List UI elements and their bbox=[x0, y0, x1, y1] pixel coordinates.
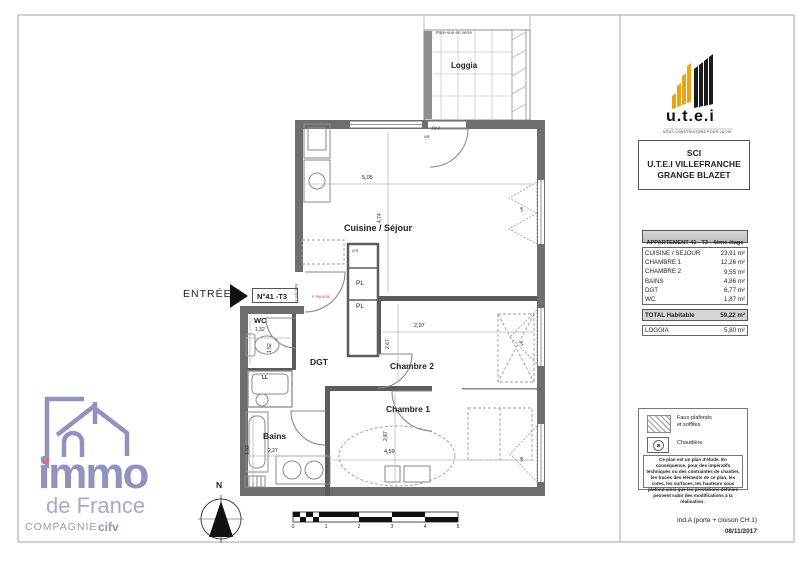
room-label-loggia: Loggia bbox=[451, 62, 477, 70]
surface-table-total: TOTAL Habitable 59,22 m² bbox=[642, 309, 748, 321]
row-label: CHAMBRE 1 bbox=[645, 258, 681, 267]
sci-line1: SCI bbox=[639, 148, 749, 159]
scale-tick-3: 3 bbox=[391, 524, 394, 530]
utei-tagline: NOUS CONSTRUISONS POUR LA VIE bbox=[663, 131, 732, 134]
sci-line3: GRANGE BLAZET bbox=[639, 170, 749, 181]
scale-bar bbox=[293, 512, 458, 522]
vr-annotation-top: VR bbox=[424, 135, 430, 139]
legend-box: Faux-plafonds et soffites Chaudière Ce p… bbox=[638, 408, 748, 490]
row-label: CUISINE / SEJOUR bbox=[645, 249, 700, 258]
immo-company-bold-label: cifv bbox=[98, 521, 119, 533]
row-value: 23,91 m² bbox=[721, 250, 745, 257]
room-label-wc: WC bbox=[254, 317, 267, 325]
sci-box: SCI U.T.E.I VILLEFRANCHE GRANGE BLAZET bbox=[638, 140, 750, 190]
vr-annotation-window3: VR bbox=[521, 457, 525, 462]
dim-wc-w: 1,32 bbox=[255, 328, 265, 333]
row-value: 4,86 m² bbox=[724, 278, 745, 285]
utei-logo-wordmark: u.t.e.i bbox=[666, 109, 715, 125]
north-compass-icon bbox=[198, 495, 244, 543]
dim-chambre1-h: 2,87 bbox=[384, 431, 389, 441]
door-red-annotation-h: P. PALIERE bbox=[312, 296, 330, 300]
total-value: 59,22 m² bbox=[720, 312, 745, 319]
dim-chambre2-w: 2,97 bbox=[414, 324, 425, 330]
dim-bains-h: 1,92 bbox=[246, 445, 251, 455]
row-label: BAINS bbox=[645, 277, 664, 286]
closet-label-gti: GTI bbox=[352, 250, 358, 254]
room-label-bains: Bains bbox=[263, 432, 286, 441]
legend-faux-plafonds-2: et soffites bbox=[677, 423, 700, 429]
scale-tick-4: 4 bbox=[424, 524, 427, 530]
row-value: 6,77 m² bbox=[724, 287, 745, 294]
scale-tick-5: 5 bbox=[457, 524, 460, 530]
dim-chambre1-w: 4,59 bbox=[384, 450, 395, 456]
dim-cuisine-w: 5,05 bbox=[362, 176, 373, 182]
loggia-row-value: 5,80 m² bbox=[724, 327, 745, 334]
pare-vue-label: Pare-vue en verre bbox=[436, 31, 472, 36]
room-label-dgt: DGT bbox=[310, 358, 328, 367]
room-label-cuisine: Cuisine / Séjour bbox=[344, 224, 412, 233]
entrance-label: ENTRÉE bbox=[183, 289, 232, 300]
dim-wc-h: 1,52 bbox=[268, 343, 273, 353]
closet-label-ll: LL bbox=[262, 376, 268, 381]
faux-plafond-swatch-icon bbox=[647, 415, 671, 433]
unit-number-label: N°41 -T3 bbox=[257, 293, 287, 301]
surface-table-header: APPARTEMENT 41 - T3 - 4ème étage bbox=[642, 230, 748, 243]
table-row: DGT6,77 m² bbox=[645, 286, 745, 295]
closet-label-pl-1: PL bbox=[356, 281, 364, 288]
table-row: CUISINE / SEJOUR23,91 m² bbox=[645, 249, 745, 258]
scale-tick-1: 1 bbox=[325, 524, 328, 530]
table-row: WC1,87 m² bbox=[645, 295, 745, 304]
dim-chambre2-h: 2,67 bbox=[386, 339, 391, 349]
dim-bains-w: 2,27 bbox=[268, 449, 278, 454]
closet-label-pl-2: PL bbox=[356, 304, 364, 311]
legend-chaudiere: Chaudière bbox=[677, 441, 702, 447]
entrance-arrow-icon bbox=[230, 284, 248, 308]
row-value: 12,26 m² bbox=[721, 259, 745, 266]
scale-tick-2: 2 bbox=[358, 524, 361, 530]
plan-sheet: Pare-vue en verre Loggia Sv 2 VR Cuisine… bbox=[0, 0, 799, 565]
loggia-row-label: LOGGIA bbox=[645, 327, 669, 334]
row-label: DGT bbox=[645, 286, 658, 295]
sci-line2: U.T.E.I VILLEFRANCHE bbox=[639, 159, 749, 170]
row-label: WC bbox=[645, 295, 655, 304]
table-row: BAINS4,86 m² bbox=[645, 277, 745, 286]
date-label: 08/11/2017 bbox=[640, 529, 757, 536]
immo-logo-wordmark: immo bbox=[38, 452, 147, 496]
legend-faux-plafonds-1: Faux-plafonds bbox=[677, 416, 712, 422]
vr-annotation-window2: VR bbox=[521, 341, 525, 346]
surface-table-title: APPARTEMENT 41 - T3 - 4ème étage bbox=[647, 240, 744, 246]
chaudiere-swatch-icon bbox=[647, 437, 669, 453]
row-value: 1,87 m² bbox=[724, 296, 745, 303]
immo-logo-subtitle: de France bbox=[46, 495, 145, 517]
table-row: CHAMBRE 112,26 m² bbox=[645, 258, 745, 267]
row-label: CHAMBRE 2 bbox=[645, 267, 681, 276]
vr-annotation-window1: VR bbox=[521, 207, 525, 212]
table-row: CHAMBRE 29,55 m² bbox=[645, 267, 745, 276]
surface-table: CUISINE / SEJOUR23,91 m² CHAMBRE 112,26 … bbox=[642, 247, 748, 305]
disclaimer-box: Ce plan est un plan d'étude. En conséque… bbox=[643, 455, 743, 488]
dim-cuisine-h: 4,74 bbox=[378, 213, 383, 223]
total-label: TOTAL Habitable bbox=[645, 312, 695, 319]
room-label-chambre1: Chambre 1 bbox=[386, 405, 430, 414]
surface-table-loggia: LOGGIA 5,80 m² bbox=[642, 325, 748, 336]
scale-tick-0: 0 bbox=[292, 524, 295, 530]
unit-number-box: N°41 -T3 bbox=[252, 288, 298, 303]
north-label: N bbox=[216, 481, 222, 490]
row-value: 9,55 m² bbox=[724, 269, 745, 276]
revision-label: Ind.A (porte + cloison CH.1) bbox=[640, 518, 757, 525]
room-label-chambre2: Chambre 2 bbox=[390, 362, 434, 371]
immo-company-label: COMPAGNIE bbox=[25, 522, 97, 533]
sv-annotation: Sv 2 bbox=[432, 126, 440, 130]
